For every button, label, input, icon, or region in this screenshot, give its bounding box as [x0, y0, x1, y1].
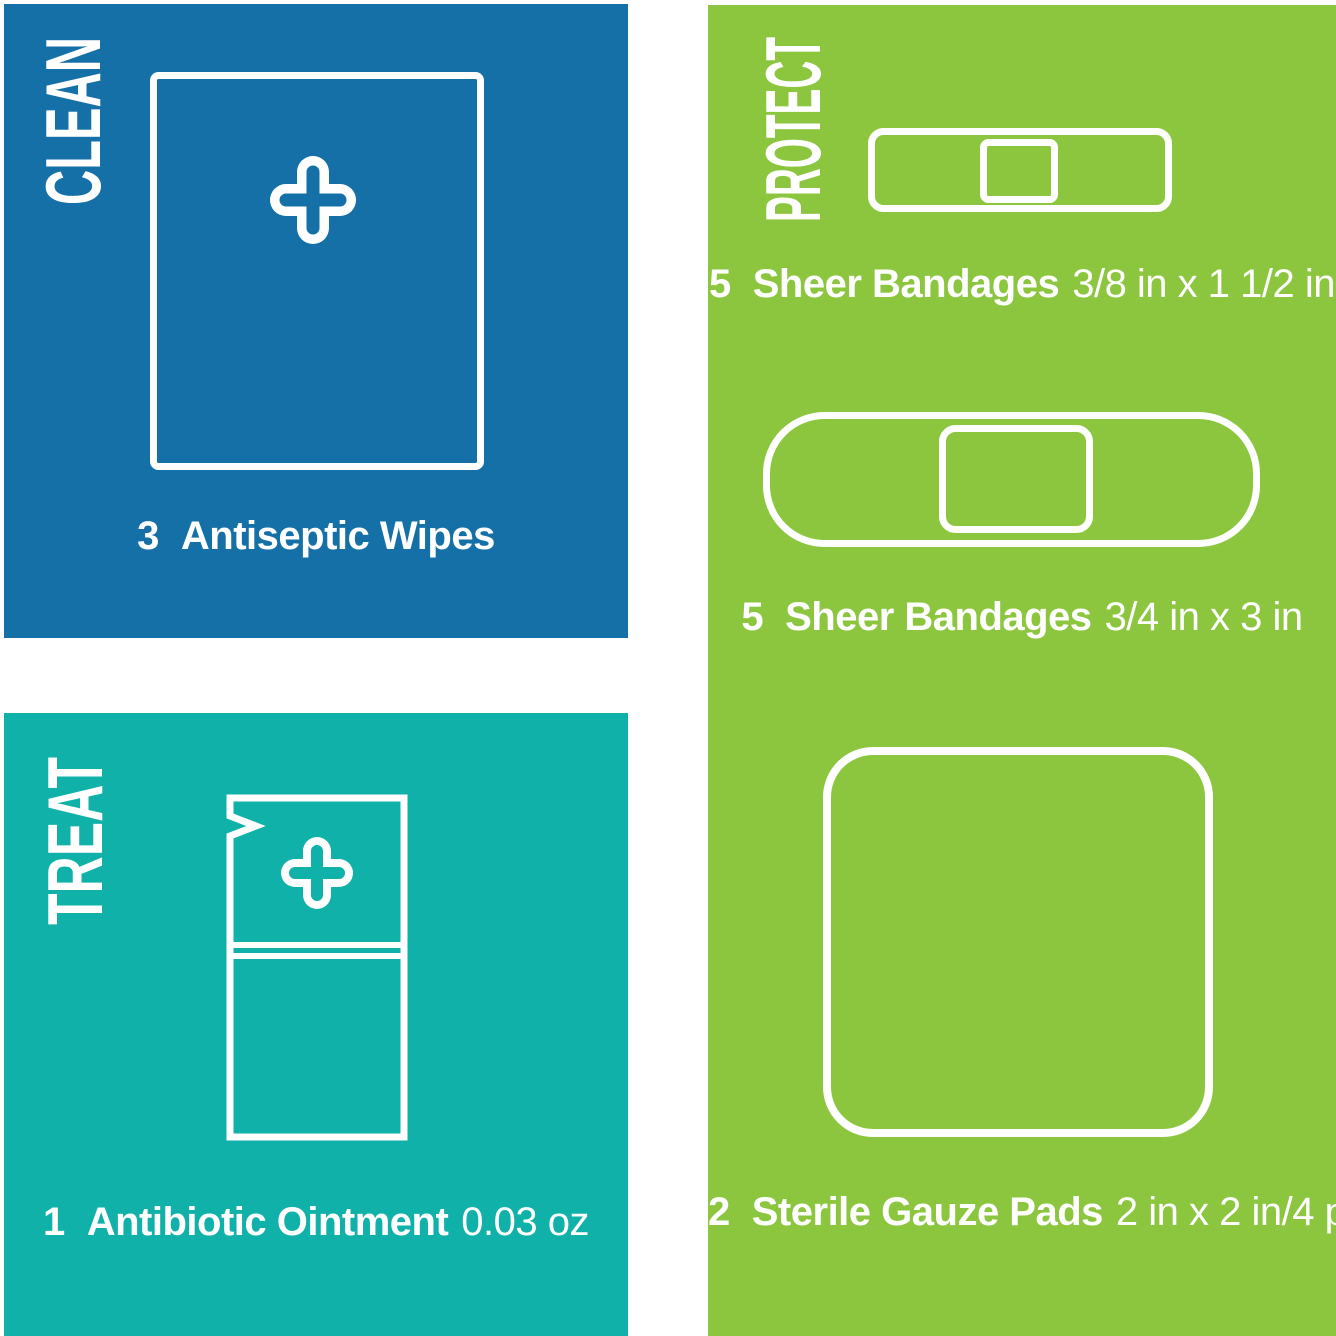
- item-qty: 1: [43, 1200, 65, 1244]
- item-name: Antiseptic Wipes: [181, 514, 495, 558]
- clean-header: CLEAN: [14, 14, 124, 244]
- plus-cross-icon: [295, 851, 339, 895]
- item-qty: 5: [741, 595, 763, 639]
- treat-header-label: TREAT: [31, 757, 119, 925]
- item-qty: 2: [708, 1190, 730, 1234]
- plus-cross-icon: [286, 172, 340, 228]
- item-label: 5Sheer Bandages3/8 in x 1 1/2 in: [708, 262, 1336, 306]
- antiseptic-wipe-icon: [150, 72, 484, 470]
- treat-panel: TREAT 1Antibiotic Ointment0.03 oz: [4, 713, 628, 1336]
- first-aid-contents-infographic: CLEAN 3Antiseptic Wipes TREAT 1An: [0, 0, 1336, 1336]
- item-spec: 3/4 in x 3 in: [1105, 595, 1303, 639]
- item-name: Sheer Bandages: [753, 262, 1059, 306]
- item-name: Sheer Bandages: [785, 595, 1091, 639]
- clean-panel: CLEAN 3Antiseptic Wipes: [4, 4, 628, 638]
- bandage-pad: [984, 143, 1055, 200]
- protect-header-label: PROTECT: [749, 37, 837, 222]
- item-spec: 3/8 in x 1 1/2 in: [1072, 262, 1335, 306]
- small-sheer-bandage-icon: [868, 128, 1172, 212]
- protect-panel: PROTECT 5Sheer Bandages3/8 in x 1 1/2 in…: [708, 5, 1336, 1336]
- item-name: Antibiotic Ointment: [87, 1200, 449, 1244]
- item-qty: 5: [709, 262, 731, 306]
- bandage-pad: [943, 429, 1090, 530]
- item-label: 3Antiseptic Wipes: [4, 514, 628, 558]
- sterile-gauze-pad-icon: [823, 747, 1213, 1137]
- item-spec: 0.03 oz: [461, 1200, 589, 1244]
- treat-header: TREAT: [14, 723, 124, 953]
- item-label: 2Sterile Gauze Pads2 in x 2 in/4 ply: [708, 1190, 1336, 1234]
- item-label: 1Antibiotic Ointment0.03 oz: [4, 1200, 628, 1244]
- item-label: 5Sheer Bandages3/4 in x 3 in: [708, 595, 1336, 639]
- item-qty: 3: [137, 514, 159, 558]
- clean-header-label: CLEAN: [29, 37, 117, 205]
- large-sheer-bandage-icon: [763, 412, 1260, 547]
- protect-header: PROTECT: [718, 15, 828, 245]
- item-spec: 2 in x 2 in/4 ply: [1116, 1190, 1336, 1234]
- ointment-packet-icon: [222, 790, 416, 1150]
- item-name: Sterile Gauze Pads: [752, 1190, 1103, 1234]
